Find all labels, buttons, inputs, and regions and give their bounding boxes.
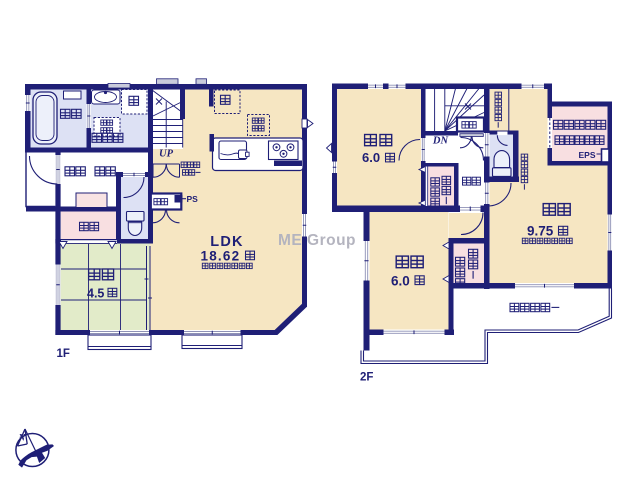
svg-text:6.0: 6.0 (391, 274, 410, 289)
svg-text:N: N (18, 433, 26, 443)
svg-text:EPS: EPS (579, 150, 596, 160)
svg-text:DN: DN (432, 136, 449, 147)
svg-text:2F: 2F (360, 372, 373, 384)
svg-text:4.5: 4.5 (87, 287, 104, 301)
svg-text:9.75: 9.75 (527, 224, 554, 239)
svg-text:UP: UP (159, 149, 174, 160)
svg-text:18.62: 18.62 (201, 248, 241, 263)
svg-text:1F: 1F (57, 348, 70, 360)
svg-text:ME Group: ME Group (278, 232, 356, 249)
svg-text:6.0: 6.0 (362, 150, 380, 165)
svg-text:PS: PS (187, 194, 199, 204)
